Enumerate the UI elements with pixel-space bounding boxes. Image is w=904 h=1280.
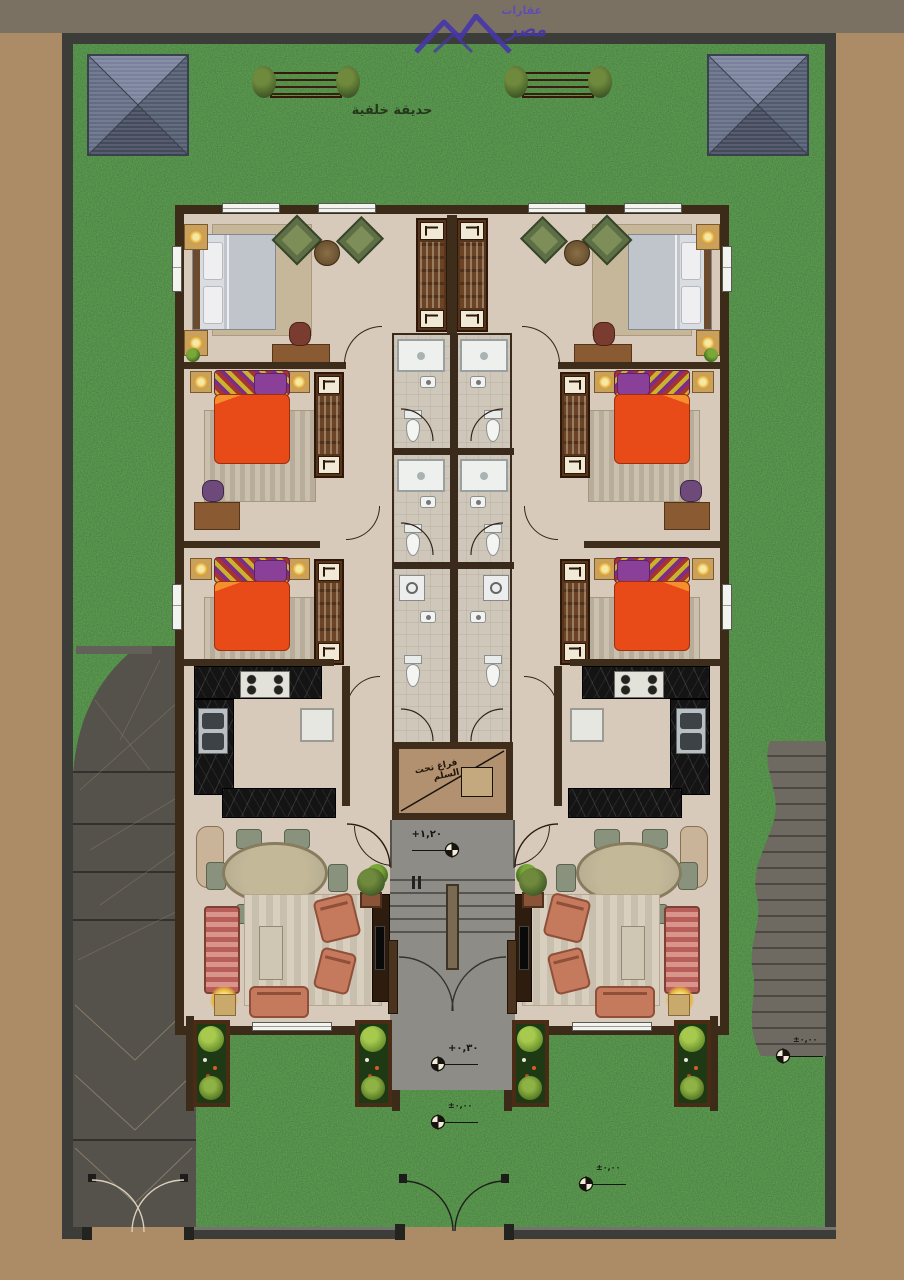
cushion-line xyxy=(325,955,351,964)
bed-pillow-purple xyxy=(617,560,650,582)
sofa-terracotta xyxy=(595,986,655,1018)
balcony-planter xyxy=(355,1020,392,1107)
wardrobe-shelf xyxy=(564,456,586,474)
planter-bush xyxy=(679,1026,705,1052)
toilet xyxy=(484,410,502,442)
bathroom-sink xyxy=(420,376,436,388)
leader-line xyxy=(444,1122,478,1123)
stair-rail xyxy=(446,884,459,970)
pyramid-roof-left xyxy=(88,55,188,155)
garden-bench-right xyxy=(522,72,594,98)
door-swing-arc xyxy=(346,506,380,540)
back-garden-label: حديقة خلفية xyxy=(333,103,451,123)
faucet xyxy=(476,500,481,505)
cushion-line xyxy=(553,955,579,964)
dining-chair xyxy=(556,864,576,892)
leader-line xyxy=(592,1184,626,1185)
porch-post xyxy=(507,940,517,1014)
bathroom-sink xyxy=(420,496,436,508)
cushion-line xyxy=(603,992,648,995)
level-marker-front-walk: ±٠,٠٠ xyxy=(430,1114,480,1130)
wardrobe-shelf xyxy=(460,310,484,328)
bed-pillow xyxy=(203,286,223,324)
kitchen-sink xyxy=(676,708,706,754)
planter-bush xyxy=(198,1026,224,1052)
toilet-tank xyxy=(404,655,422,664)
sofa-terracotta xyxy=(249,986,309,1018)
flower xyxy=(203,1058,207,1062)
level-marker-front-garden: ±٠,٠٠ xyxy=(578,1176,628,1192)
shower xyxy=(460,459,508,492)
bush xyxy=(504,66,528,98)
bed-duvet xyxy=(214,581,290,651)
window xyxy=(722,584,732,630)
bush xyxy=(588,66,612,98)
interior-wall xyxy=(342,666,350,806)
bush xyxy=(252,66,276,98)
bed-orange xyxy=(214,370,290,464)
wardrobe-rack xyxy=(318,396,340,454)
toilet-bowl xyxy=(406,419,420,442)
porch-post xyxy=(388,940,398,1014)
bathroom-divider-wall xyxy=(394,562,514,569)
table-lamp xyxy=(189,230,203,244)
faucet xyxy=(476,615,481,620)
flower xyxy=(684,1058,688,1062)
bathroom-core xyxy=(392,333,512,745)
level-marker-entry-landing: +١,٢٠ xyxy=(402,842,460,858)
coffee-table xyxy=(259,926,283,980)
potted-bush xyxy=(519,868,547,896)
sofa-striped xyxy=(664,906,700,994)
table-lamp xyxy=(194,375,208,389)
coffee-table xyxy=(621,926,645,980)
cushion-line xyxy=(257,992,302,995)
tv xyxy=(519,926,529,970)
nightstand xyxy=(692,371,714,393)
interior-wall xyxy=(184,541,320,548)
shower-drain xyxy=(417,472,425,480)
toilet-tank xyxy=(404,410,422,419)
flower xyxy=(213,1066,217,1070)
bathroom-sink xyxy=(470,496,486,508)
window xyxy=(172,246,182,292)
side-table xyxy=(214,994,236,1016)
cushion-line xyxy=(320,901,349,911)
window xyxy=(624,203,682,213)
faucet xyxy=(426,380,431,385)
refrigerator xyxy=(570,708,604,742)
wardrobe-shelf xyxy=(318,563,340,581)
shower xyxy=(460,339,508,372)
window xyxy=(222,203,280,213)
side-table xyxy=(668,994,690,1016)
toilet xyxy=(484,655,502,687)
washer-door xyxy=(490,582,502,594)
bed-orange xyxy=(214,557,290,651)
table-lamp xyxy=(598,375,612,389)
pyramid-roof-right xyxy=(708,55,808,155)
armchair-cushion xyxy=(591,224,622,255)
wardrobe xyxy=(416,218,448,332)
bush xyxy=(336,66,360,98)
toilet-bowl xyxy=(486,533,500,556)
flower xyxy=(522,1058,526,1062)
under-stair-void-panel: فراغ تحت السلم xyxy=(392,742,513,820)
planter-bush xyxy=(517,1026,543,1052)
refrigerator xyxy=(300,708,334,742)
leader-line xyxy=(444,1064,478,1065)
wardrobe-rack xyxy=(564,396,586,454)
wardrobe-shelf xyxy=(460,222,484,240)
wardrobe xyxy=(560,559,590,665)
wardrobe xyxy=(314,559,344,665)
flower xyxy=(532,1066,536,1070)
nightstand xyxy=(696,224,720,250)
toilet xyxy=(404,410,422,442)
table-lamp xyxy=(194,562,208,576)
living-room-window xyxy=(572,1022,652,1031)
tv xyxy=(375,926,385,970)
toilet xyxy=(484,524,502,556)
nightstand xyxy=(594,371,616,393)
desk-chair xyxy=(289,322,311,346)
sink-basin xyxy=(680,733,702,750)
flower xyxy=(694,1066,698,1070)
washer-door xyxy=(406,582,418,594)
door-swing-arc xyxy=(344,326,382,364)
level-marker-label: +٠,٣٠ xyxy=(448,1043,479,1054)
nightstand xyxy=(594,558,616,580)
kitchen-sink xyxy=(198,708,228,754)
bathroom-sink xyxy=(470,376,486,388)
table-lamp xyxy=(696,375,710,389)
toilet xyxy=(404,524,422,556)
wardrobe-rack xyxy=(318,583,340,641)
bathroom-sink xyxy=(470,611,486,623)
desk xyxy=(664,502,710,530)
toilet xyxy=(404,655,422,687)
wardrobe xyxy=(560,372,590,478)
living-room-window xyxy=(252,1022,332,1031)
nightstand xyxy=(190,371,212,393)
wardrobe xyxy=(456,218,488,332)
leader-line xyxy=(789,1056,823,1057)
balcony-planter xyxy=(674,1020,711,1107)
toilet-bowl xyxy=(406,533,420,556)
wardrobe-shelf xyxy=(318,376,340,394)
sink-basin xyxy=(202,713,224,730)
door-swing-arc xyxy=(354,826,394,866)
planter-bush xyxy=(680,1076,704,1100)
cushion-line xyxy=(556,901,585,911)
shower xyxy=(397,459,445,492)
balcony-planter xyxy=(512,1020,549,1107)
wardrobe-rack xyxy=(420,242,444,308)
party-wall xyxy=(447,215,457,333)
bathroom-sink xyxy=(420,611,436,623)
bed-pillow-purple xyxy=(254,560,287,582)
bed-pillow-purple xyxy=(254,373,287,395)
desk-chair xyxy=(593,322,615,346)
window xyxy=(172,584,182,630)
level-marker-icon xyxy=(578,1176,594,1192)
level-marker-label: ±٠,٠٠ xyxy=(448,1101,472,1110)
bed-orange xyxy=(614,370,690,464)
wardrobe-shelf xyxy=(420,310,444,328)
interior-wall xyxy=(584,541,720,548)
bed-orange xyxy=(614,557,690,651)
bed-duvet xyxy=(614,581,690,651)
door-swing-arc xyxy=(510,826,550,866)
bed-fold xyxy=(675,235,677,329)
interior-wall xyxy=(558,362,720,369)
stove xyxy=(240,671,290,698)
bed-pillow-purple xyxy=(617,373,650,395)
armchair-cushion xyxy=(346,226,374,254)
table-lamp xyxy=(598,562,612,576)
door-swing-arc xyxy=(522,326,560,364)
washing-machine xyxy=(483,575,509,601)
bathroom-divider-wall xyxy=(450,335,458,747)
bed-duvet xyxy=(214,394,290,464)
bed-pillow xyxy=(681,286,701,324)
level-marker-side-garden: ±٠,٠٠ xyxy=(775,1048,825,1064)
kitchen-counter xyxy=(568,788,682,818)
desk xyxy=(194,502,240,530)
toilet-tank xyxy=(484,524,502,533)
toilet-tank xyxy=(404,524,422,533)
logo-word-top: عقارات xyxy=(501,4,542,17)
washing-machine xyxy=(399,575,425,601)
window xyxy=(318,203,376,213)
window xyxy=(722,246,732,292)
balcony-wall xyxy=(710,1016,718,1111)
void-duct-box xyxy=(461,767,493,797)
nightstand xyxy=(184,224,208,250)
interior-wall xyxy=(184,659,334,666)
level-marker-porch: +٠,٣٠ xyxy=(430,1056,488,1072)
bathroom-divider-wall xyxy=(394,448,514,455)
table-lamp xyxy=(696,562,710,576)
wardrobe-shelf xyxy=(420,222,444,240)
garden-bench-left xyxy=(270,72,342,98)
wardrobe-shelf xyxy=(564,563,586,581)
floor-plan-canvas: عقارات مصر حديقة خلفية xyxy=(0,0,904,1280)
flower xyxy=(365,1058,369,1062)
kitchen-counter xyxy=(222,788,336,818)
toilet-tank xyxy=(484,655,502,664)
planter-bush xyxy=(199,1076,223,1100)
level-marker-label: +١,٢٠ xyxy=(412,829,443,840)
potted-bush xyxy=(357,868,385,896)
armchair-cushion xyxy=(530,226,558,254)
toilet-bowl xyxy=(486,419,500,442)
planter-bush xyxy=(361,1076,385,1100)
stair-break-mark xyxy=(412,876,422,889)
shower-drain xyxy=(480,352,488,360)
level-marker-label: ±٠,٠٠ xyxy=(793,1035,817,1044)
shower-drain xyxy=(417,352,425,360)
shower-drain xyxy=(480,472,488,480)
desk-chair xyxy=(202,480,224,502)
bed-fold xyxy=(227,235,229,329)
toilet-bowl xyxy=(486,664,500,687)
desk xyxy=(272,344,330,364)
toilet-tank xyxy=(484,410,502,419)
stove xyxy=(614,671,664,698)
nightstand xyxy=(288,371,310,393)
armchair-cushion xyxy=(281,224,312,255)
driveway-curb xyxy=(76,646,152,654)
table-lamp xyxy=(292,375,306,389)
wardrobe xyxy=(314,372,344,478)
logo-word-main: مصر xyxy=(507,17,546,41)
wardrobe-shelf xyxy=(564,376,586,394)
flower xyxy=(375,1066,379,1070)
door-swing-arc xyxy=(524,506,558,540)
level-marker-icon xyxy=(430,1114,446,1130)
bed-duvet xyxy=(614,394,690,464)
wardrobe-rack xyxy=(564,583,586,641)
faucet xyxy=(426,500,431,505)
planter-bush xyxy=(518,1076,542,1100)
wardrobe-shelf xyxy=(318,456,340,474)
table-lamp xyxy=(292,562,306,576)
door-swing-arc xyxy=(346,676,380,710)
dining-chair xyxy=(328,864,348,892)
sofa-striped xyxy=(204,906,240,994)
balcony-planter xyxy=(193,1020,230,1107)
desk-chair xyxy=(680,480,702,502)
door-swing-arc xyxy=(524,676,558,710)
wardrobe-rack xyxy=(460,242,484,308)
nightstand xyxy=(190,558,212,580)
level-marker-icon xyxy=(444,842,460,858)
company-logo: عقارات مصر xyxy=(396,2,548,56)
level-marker-icon xyxy=(775,1048,791,1064)
interior-wall xyxy=(184,362,346,369)
leader-line xyxy=(412,850,446,851)
potted-plant xyxy=(186,348,200,362)
round-table xyxy=(564,240,590,266)
interior-wall xyxy=(570,659,720,666)
nightstand xyxy=(288,558,310,580)
nightstand xyxy=(692,558,714,580)
round-table xyxy=(314,240,340,266)
armchair xyxy=(336,216,384,264)
faucet xyxy=(426,615,431,620)
level-marker-label: ±٠,٠٠ xyxy=(596,1163,620,1172)
faucet xyxy=(476,380,481,385)
window xyxy=(528,203,586,213)
sink-basin xyxy=(680,713,702,730)
shower xyxy=(397,339,445,372)
desk xyxy=(574,344,632,364)
toilet-bowl xyxy=(406,664,420,687)
armchair xyxy=(520,216,568,264)
sink-basin xyxy=(202,733,224,750)
potted-plant xyxy=(704,348,718,362)
planter-bush xyxy=(360,1026,386,1052)
table-lamp xyxy=(701,230,715,244)
level-marker-icon xyxy=(430,1056,446,1072)
interior-wall xyxy=(554,666,562,806)
